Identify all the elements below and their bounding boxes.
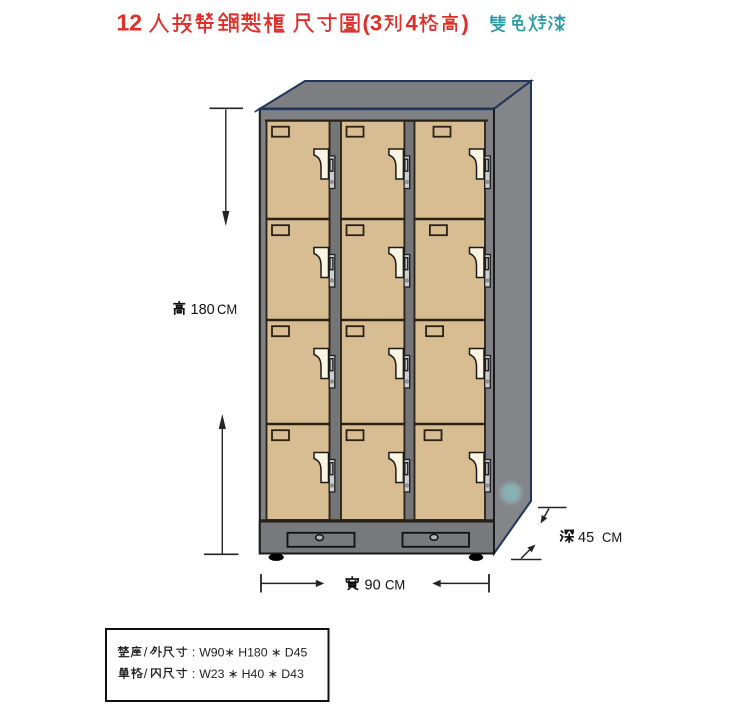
- svg-text:/: /: [144, 645, 148, 660]
- svg-text:CM: CM: [385, 577, 405, 593]
- svg-text:45: 45: [578, 530, 594, 546]
- svg-text:): ): [462, 11, 469, 36]
- svg-text:(3: (3: [363, 11, 383, 36]
- svg-text:W23 ∗ H40 ∗ D43: W23 ∗ H40 ∗ D43: [199, 667, 304, 681]
- svg-text::: :: [192, 666, 196, 681]
- svg-text:4: 4: [406, 11, 419, 36]
- svg-text:CM: CM: [217, 301, 237, 317]
- svg-text:W90∗ H180 ∗ D45: W90∗ H180 ∗ D45: [199, 646, 307, 660]
- svg-text:90: 90: [365, 577, 381, 593]
- svg-text:CM: CM: [602, 529, 622, 545]
- svg-text:180: 180: [191, 302, 215, 318]
- svg-text:12: 12: [117, 10, 143, 36]
- svg-text:/: /: [144, 666, 148, 681]
- svg-text::: :: [192, 645, 196, 660]
